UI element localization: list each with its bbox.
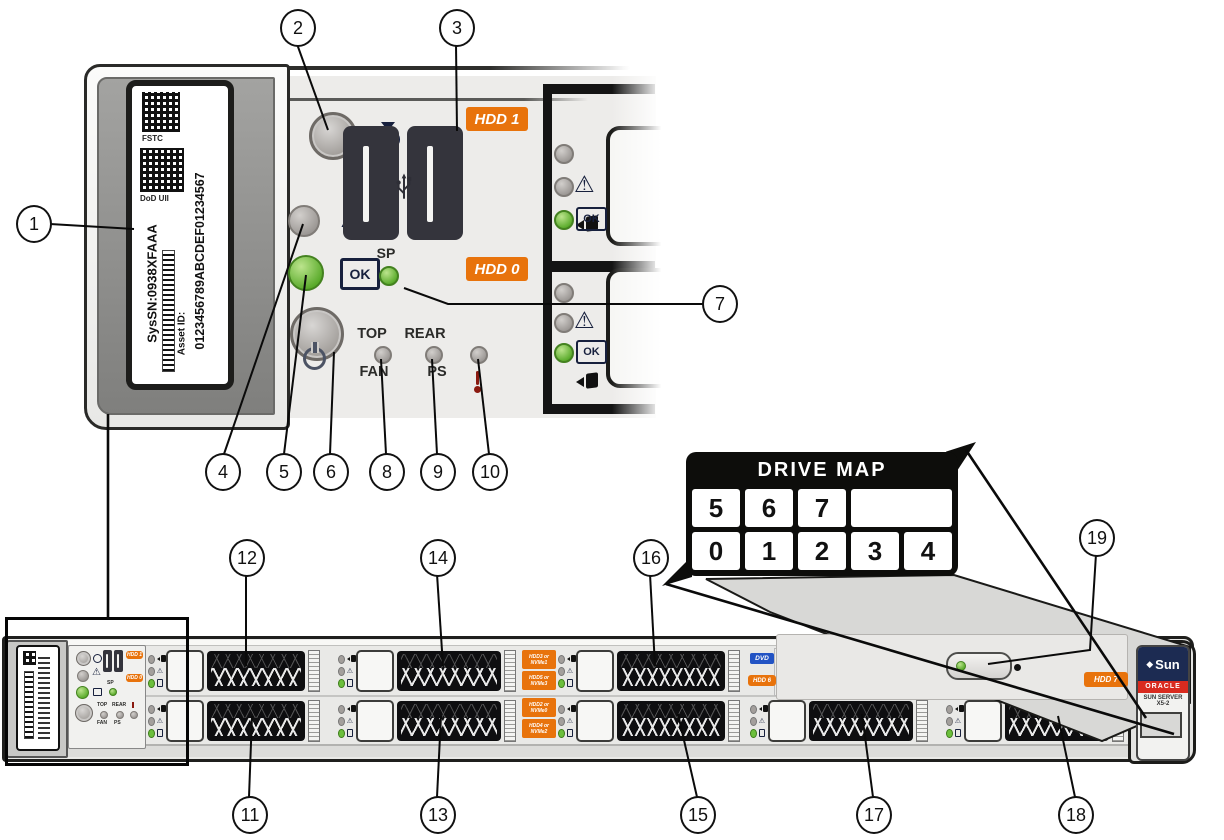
top-fan-led <box>374 346 392 364</box>
drive-map-cell: 5 <box>692 489 740 527</box>
ready-to-remove-icon <box>576 372 600 390</box>
drive-capacity-label <box>916 700 928 742</box>
drive-led-block: ⚠ <box>338 654 353 688</box>
drive-status-led <box>338 655 345 664</box>
drive-front-grille <box>397 701 501 741</box>
callout-9: 9 <box>420 453 456 491</box>
drive-status-led <box>946 705 953 714</box>
drive-map-title: DRIVE MAP <box>692 456 952 484</box>
product-badge: ◆ Sun ORACLE SUN SERVER X5-2 <box>1136 645 1190 761</box>
drive-bay-5: ⚠ <box>556 698 742 744</box>
asset-id-value: 0123456789ABCDEF01234567 <box>193 156 207 366</box>
ok-label-box: OK <box>340 258 380 290</box>
ok-label-box <box>955 729 962 737</box>
drive-capacity-label <box>728 650 740 692</box>
drive-capacity-label <box>308 650 320 692</box>
ok-label-box <box>567 679 574 687</box>
drive-capacity-label <box>728 700 740 742</box>
callout-4: 4 <box>205 453 241 491</box>
panel-divider <box>543 84 552 414</box>
drive-status-led <box>750 705 757 714</box>
dvd-led <box>956 661 966 671</box>
drive-bay-4: ⚠ <box>336 698 518 744</box>
dvd-eject-button <box>946 652 1012 680</box>
rear-label: REAR <box>400 326 450 342</box>
hdd1-fault-led <box>554 177 574 197</box>
model-line2: X5-2 <box>1138 701 1188 707</box>
hdd0-fault-led <box>554 313 574 333</box>
drive-latch-button <box>356 700 394 742</box>
drive-ok-led <box>946 729 953 738</box>
fault-warning-icon: ⚠ <box>567 668 573 675</box>
usb-port-1 <box>407 126 463 240</box>
callout-1: 1 <box>16 205 52 243</box>
callout-7: 7 <box>702 285 738 323</box>
drive-capacity-label <box>504 700 516 742</box>
drive-status-led <box>558 667 565 676</box>
qr-caption-dod: DoD UII <box>140 194 169 203</box>
fault-warning-icon: ⚠ <box>574 171 595 198</box>
drive-map-cell: 0 <box>692 532 740 570</box>
drive-ok-led <box>558 679 565 688</box>
hdd0-ready-led <box>554 283 574 303</box>
sp-label: SP <box>370 245 402 261</box>
ok-label-box: OK <box>576 207 607 231</box>
drive-front-grille <box>1005 701 1109 741</box>
asset-id-label: Asset ID: <box>177 299 188 369</box>
drive-status-led <box>338 717 345 726</box>
drive-map-cell-blank <box>851 489 952 527</box>
hdd1-tag: HDD 1 <box>466 107 528 131</box>
zoom-region-outline <box>5 617 189 766</box>
fault-warning-icon: ⚠ <box>347 718 353 725</box>
drive-led-block: ⚠ <box>558 704 573 738</box>
fault-warning-icon: ⚠ <box>955 718 961 725</box>
drive-ok-led <box>338 679 345 688</box>
hdd0-tag: HDD 0 <box>466 257 528 281</box>
fault-warning-icon: ⚠ <box>759 718 765 725</box>
oracle-band: ORACLE <box>1138 681 1188 693</box>
drive-bay-1: ⚠ <box>336 648 518 694</box>
drive-latch-button <box>576 650 614 692</box>
system-serial-text: SysSN:0938XFAAA <box>145 209 160 359</box>
ready-to-remove-icon <box>955 705 961 713</box>
drive-status-led <box>558 705 565 714</box>
drive-map-cell: 6 <box>745 489 793 527</box>
hdd1-ok-led <box>554 210 574 230</box>
drive-capacity-label <box>504 650 516 692</box>
drive-front-grille <box>207 651 305 691</box>
chassis-top-edge-line <box>230 66 630 70</box>
drive-latch-button <box>768 700 806 742</box>
callout-5: 5 <box>266 453 302 491</box>
qr-code-dod <box>140 148 184 192</box>
service-label: FSTC DoD UII SysSN:0938XFAAA Asset ID: 0… <box>126 80 234 390</box>
ps-label: PS <box>415 364 459 380</box>
drive-front-grille <box>397 651 501 691</box>
drive-latch-button <box>356 650 394 692</box>
dvd-emergency-eject-hole <box>1014 664 1021 671</box>
drive-map-cell: 2 <box>798 532 846 570</box>
ready-to-remove-icon <box>759 705 765 713</box>
drive-led-block: ⚠ <box>946 704 961 738</box>
callout-11: 11 <box>232 796 268 834</box>
sun-diamond-icon: ◆ <box>1146 659 1153 670</box>
callout-16: 16 <box>633 539 669 577</box>
drive-bay-7: ⚠ <box>944 698 1126 744</box>
hdd6-tag: HDD 6 <box>748 675 776 686</box>
serial-barcode <box>162 250 175 372</box>
drive-front-grille <box>617 701 725 741</box>
drive-status-led <box>558 655 565 664</box>
qr-code-fstc <box>142 92 180 132</box>
overtemp-led <box>470 346 488 364</box>
bay-tag: HDD3 or NVMe1 <box>522 650 556 669</box>
drive-front-grille <box>809 701 913 741</box>
usb-icon <box>395 172 413 202</box>
callout-3: 3 <box>439 9 475 47</box>
power-icon <box>303 347 326 370</box>
panel-top-groove <box>268 98 588 101</box>
drive-led-block: ⚠ <box>750 704 765 738</box>
callout-10: 10 <box>472 453 508 491</box>
ok-label-box <box>759 729 766 737</box>
drive-map-row-bottom: 0 1 2 3 4 <box>692 532 952 570</box>
drive-map-cell: 7 <box>798 489 846 527</box>
drive-ok-led <box>558 729 565 738</box>
drive-led-block: ⚠ <box>558 654 573 688</box>
server-front-panel-figure: FSTC DoD UII SysSN:0938XFAAA Asset ID: 0… <box>0 0 1224 840</box>
bay-tag: HDD5 or NVMe3 <box>522 671 556 690</box>
ready-to-remove-icon <box>347 705 353 713</box>
dvd-tag: DVD <box>750 653 774 664</box>
drive-map-cell: 3 <box>851 532 899 570</box>
callout-12: 12 <box>229 539 265 577</box>
ok-label-box <box>347 679 354 687</box>
ready-to-remove-icon <box>567 705 573 713</box>
drive-status-led <box>558 717 565 726</box>
callout-14: 14 <box>420 539 456 577</box>
drive-status-led <box>750 717 757 726</box>
drive-led-block: ⚠ <box>338 704 353 738</box>
hdd1-ready-led <box>554 144 574 164</box>
drive-front-grille <box>617 651 725 691</box>
dvd-slot-location <box>1140 712 1182 738</box>
drive-bay-2: ⚠ <box>556 648 742 694</box>
top-label: TOP <box>350 326 394 342</box>
ready-to-remove-icon <box>567 655 573 663</box>
fault-led <box>288 205 320 237</box>
callout-2: 2 <box>280 9 316 47</box>
rear-ps-led <box>425 346 443 364</box>
fault-warning-icon: ⚠ <box>574 307 595 334</box>
callout-15: 15 <box>680 796 716 834</box>
drive-ok-led <box>750 729 757 738</box>
fault-warning-icon: ⚠ <box>347 668 353 675</box>
callout-19: 19 <box>1079 519 1115 557</box>
callout-18: 18 <box>1058 796 1094 834</box>
drive-ok-led <box>338 729 345 738</box>
callout-13: 13 <box>420 796 456 834</box>
drive-front-grille <box>207 701 305 741</box>
ready-to-remove-icon <box>347 655 353 663</box>
bay-tag: HDD4 or NVMe2 <box>522 719 556 738</box>
ok-label-box: OK <box>576 340 607 364</box>
bay-tag: HDD2 or NVMe0 <box>522 698 556 717</box>
fault-warning-icon: ⚠ <box>567 718 573 725</box>
usb-port-0 <box>343 126 399 240</box>
callout-17: 17 <box>856 796 892 834</box>
drive-bay-6: ⚠ <box>748 698 930 744</box>
fade-edge <box>612 60 670 428</box>
fade-edge <box>666 60 766 428</box>
drive-capacity-label <box>1112 700 1124 742</box>
drive-map: DRIVE MAP 5 6 7 0 1 2 3 4 <box>686 452 958 576</box>
hdd0-ok-led <box>554 343 574 363</box>
drive-status-led <box>338 667 345 676</box>
ok-label-box <box>567 729 574 737</box>
fan-label: FAN <box>352 364 396 380</box>
drive-status-led <box>338 705 345 714</box>
drive-capacity-label <box>308 700 320 742</box>
drive-status-led <box>946 717 953 726</box>
ok-led <box>288 255 324 291</box>
callout-8: 8 <box>369 453 405 491</box>
callout-6: 6 <box>313 453 349 491</box>
drive-map-cell: 1 <box>745 532 793 570</box>
sun-brand: Sun <box>1155 657 1180 672</box>
hdd7-tag: HDD 7 <box>1084 672 1128 687</box>
drive-latch-button <box>576 700 614 742</box>
ok-label-box <box>347 729 354 737</box>
sp-led <box>379 266 399 286</box>
drive-map-cell: 4 <box>904 532 952 570</box>
temperature-icon <box>473 371 482 393</box>
drive-map-row-top: 5 6 7 <box>692 489 952 527</box>
qr-caption-fstc: FSTC <box>142 134 163 143</box>
drive-latch-button <box>964 700 1002 742</box>
